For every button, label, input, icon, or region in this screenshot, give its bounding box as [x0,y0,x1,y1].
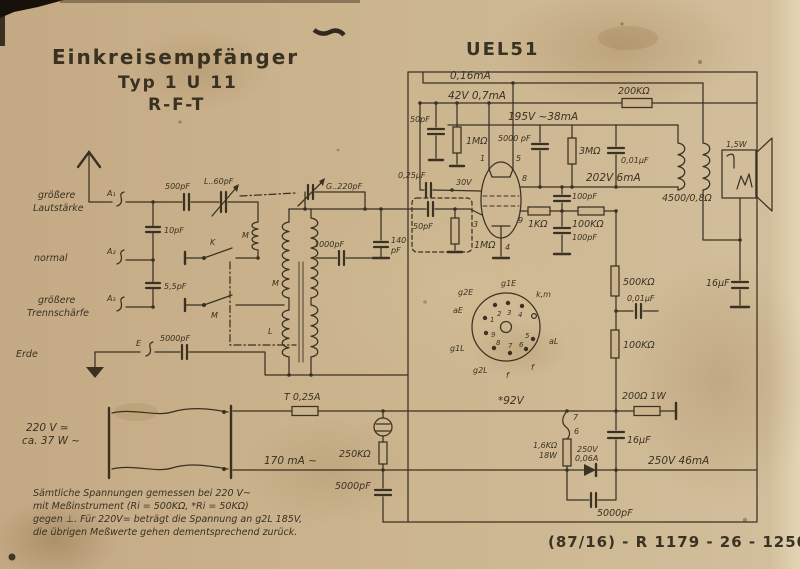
terminal-a3-label: A₃ [106,294,116,303]
resistor-250k [379,442,387,464]
rail-anode-label: 202V 6mA [586,172,641,184]
note-line3: gegen ⊥. Für 220V= beträgt die Spannung … [33,514,302,525]
cap-5000pf-screen [532,125,548,187]
title-line3: R-F-T [148,95,205,115]
resistor-200ohm [634,407,660,416]
socket-aL: aL [549,337,558,346]
svg-text:9: 9 [491,331,496,339]
band-switch-m [185,295,284,311]
tube-uel51 [481,83,521,258]
coil-mid-label: M [272,279,279,288]
trimmer-60pf [212,184,239,216]
cap-5000pf-rect [567,470,616,507]
rectifier-diode-icon [584,464,596,476]
socket-diagram: 12 34 56 78 9 g2E g1E k,m aE aL g1L g2L … [450,279,558,380]
resistor-1k6-label1: 1,6KΩ [533,441,558,450]
resistor-100k-v-label: 100KΩ [623,340,655,351]
voltage-92v: *92V [498,395,525,407]
cap-5000pf-screen-label: 5000 pF [498,134,531,143]
svg-text:5: 5 [525,332,530,340]
tuning-section: G..220pF M M L [185,178,482,377]
scanned-schematic-paper: Einkreisempfänger Typ 1 U 11 R-F-T UEL51… [0,0,800,569]
left-winding [282,209,289,375]
tube-pin4: 4 [505,243,510,252]
resistor-1m-grid [448,209,462,252]
heater-pin7: 7 [573,413,579,422]
transformer-label: 4500/0,8Ω [662,193,712,204]
voltage-250v: 250V 46mA [648,455,709,467]
resistor-1k-label: 1KΩ [528,219,548,230]
socket-km: k,m [536,290,551,299]
terminal-a1 [117,192,124,206]
socket-g2L: g2L [473,366,488,375]
divider-chain [611,211,658,411]
rail-c-label: 195V ~38mA [508,111,578,123]
socket-electrode-labels: g2E g1E k,m aE aL g1L g2L f f [450,279,558,380]
svg-text:6: 6 [519,341,524,349]
cap-100pf-a-label: 100pF [572,192,597,201]
voltage-30v: 30V [456,178,472,187]
title-line2: Typ 1 U 11 [118,73,238,93]
trimmer-60pf-label: L..60pF [204,177,234,186]
cap-140pf-unit: pF [390,246,401,255]
terminal-e-label: E [136,339,142,348]
socket-g1L: g1L [450,344,465,353]
svg-text:1: 1 [490,316,494,324]
cap-500pf-label: 500pF [165,182,190,191]
band-switch-k [185,248,260,264]
cap-5000pf-bottom [375,470,391,522]
cap-erde-label: 5000pF [160,334,190,343]
socket-guide-hole [532,314,537,319]
resistor-200k-label: 200KΩ [618,86,650,97]
svg-text:2: 2 [497,310,502,318]
desc-a2: normal [34,253,68,264]
right-winding [311,209,318,375]
socket-pin-numbers: 12 34 56 78 9 [490,309,530,350]
cap-10pf-label: 10pF [164,226,184,235]
terminal-e [146,342,153,356]
cap-100pf-b [554,211,570,254]
cap-500pf [184,194,189,210]
rail-a-label: 0,16mA [450,70,491,82]
cap-16uf-a [731,240,749,307]
ground-icon [86,352,104,378]
cap-5000pf-bottom-label: 5000pF [335,481,371,492]
resistor-3m-label: 3MΩ [579,146,601,157]
terminal-a2-label: A₂ [106,247,116,256]
cap-5p5pf-label: 5,5pF [164,282,187,291]
socket-f1: f [506,371,510,380]
cap-16uf-a-label: 16µF [706,278,730,289]
resistor-200k [622,99,652,108]
mains-power-label: ca. 37 W ~ [22,435,80,447]
note-line4: die übrigen Meßwerte gehen dementspreche… [33,527,297,538]
fuse-label: T 0,25A [284,392,320,403]
cap-100pf-b-label: 100pF [572,233,597,242]
tube-pin8: 8 [522,174,527,183]
resistor-100k-h [578,207,604,215]
socket-f2: f [531,363,535,372]
switch-gang-link [230,262,296,345]
dial-lamp-icon [374,411,392,442]
rectifier-voltage: 250V [577,445,598,454]
note-line2: mit Meßinstrument (Ri = 500KΩ, *Ri = 50K… [33,501,249,512]
resistor-250k-label: 250KΩ [339,449,371,460]
resistor-1m-top [450,103,464,166]
terminal-a2 [117,250,124,264]
note-line1: Sämtliche Spannungen gemessen bei 220 V~ [33,488,251,499]
rail-b-label: 42V 0,7mA [448,90,506,102]
socket-g1E: g1E [501,279,517,288]
resistor-3m [568,125,576,187]
tube-pin1: 1 [480,154,485,163]
title-line1: Einkreisempfänger [52,45,299,69]
terminal-a1-label: A₁ [106,189,116,198]
cap-140pf-label: 140 [391,236,406,245]
mechanical-gang-link [240,193,296,196]
desc-a3-line2: Trennschärfe [27,308,89,319]
cap-1000pf-label: 1000pF [314,240,344,249]
desc-erde: Erde [16,349,38,360]
tube-type-label: UEL51 [466,39,539,60]
heater-pin6: 6 [574,427,579,436]
coupling-coil [252,202,258,258]
cap-025uf-label: 0,25µF [398,171,426,180]
mains-voltage-label: 220 V ≃ [26,422,69,434]
antenna-icon [78,152,100,202]
speaker-power-label: 1,5W [726,140,748,149]
resistor-1m-grid-label: 1MΩ [474,240,496,251]
socket-aE: aE [453,306,464,315]
resistor-500k-label: 500KΩ [623,277,655,288]
tube-pin3: 3 [473,220,478,229]
resistor-200ohm-label: 200Ω 1W [622,391,666,402]
resistor-100k-v [611,330,619,358]
svg-text:4: 4 [518,311,522,319]
resistor-500k [611,266,619,296]
desc-a1-line1: größere [38,190,75,201]
socket-g2E: g2E [458,288,474,297]
heater-dropper [563,411,571,470]
cap-140pf [373,209,389,258]
rectifier-current: 0,06A [575,454,598,463]
switch-m-label: M [211,311,218,320]
cap-001uf-b-label: 0,01µF [627,294,655,303]
desc-a1-line2: Lautstärke [33,203,84,214]
resistor-1k6 [563,439,571,466]
cap-50pf-grid-label: 50pF [413,222,433,231]
desc-a3-line1: größere [38,295,75,306]
output-section: 4500/0,8Ω 1,5W 16µF [611,83,772,411]
notes-block: Sämtliche Spannungen gemessen bei 220 V~… [33,488,302,538]
resistor-1k [528,207,550,215]
output-transformer [678,83,740,240]
tuning-cap-label: G..220pF [326,182,363,191]
title-block: Einkreisempfänger Typ 1 U 11 R-F-T [52,45,299,115]
resistor-100k-h-label: 100KΩ [572,219,604,230]
coil-top-label: M [242,231,249,240]
cap-001uf-a-label: 0,01µF [621,156,649,165]
svg-text:8: 8 [496,339,501,347]
terminal-a3 [117,297,124,311]
print-code: (87/16) - R 1179 - 26 - 1250 [548,533,800,551]
svg-text:7: 7 [508,342,513,350]
switch-k-label: K [210,238,216,247]
cap-16uf-b-label: 16µF [627,435,651,446]
tube-pin5: 5 [516,154,521,163]
cap-50pf-grid [428,202,433,216]
tube-pin9: 9 [518,216,523,225]
cap-100pf-a [554,187,570,211]
cap-50pf-top [428,103,444,160]
ink-smudge [314,30,344,35]
cap-16uf-b [608,411,624,470]
svg-text:3: 3 [507,309,511,317]
schematic-svg: Einkreisempfänger Typ 1 U 11 R-F-T UEL51… [0,0,800,569]
current-170ma: 170 mA ~ [264,455,317,467]
fuse [292,407,318,416]
coil-low-label: L [268,327,272,336]
resistor-1m-top-label: 1MΩ [466,136,488,147]
cap-5000pf-rect-label: 5000pF [597,508,633,519]
resistor-1k6-label2: 18W [539,451,558,460]
